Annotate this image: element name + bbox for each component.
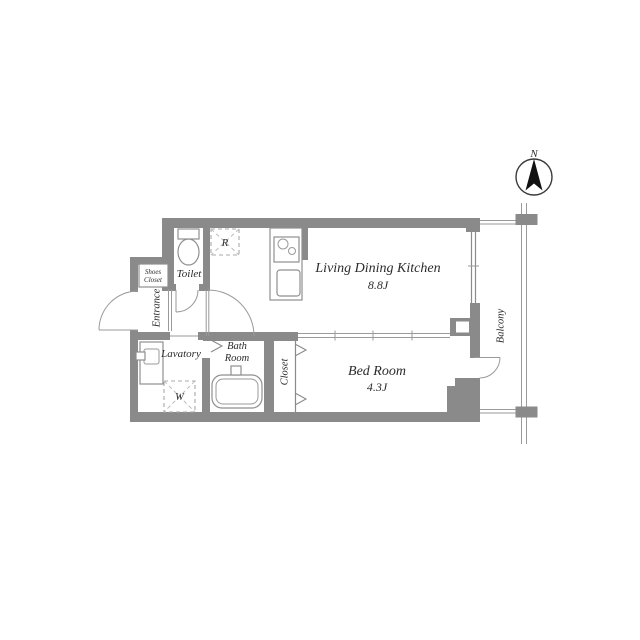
toilet-fixture [178, 229, 199, 265]
bedroom-label: Bed Room [348, 364, 406, 379]
entrance-door [99, 291, 138, 330]
bedroom-area-label: 4.3J [367, 380, 388, 394]
kitchen-sink-icon [277, 270, 300, 296]
floor-plan-drawing: N Living Dining Kitchen 8.8J Bed Room 4.… [0, 0, 640, 640]
toilet-label: Toilet [177, 268, 203, 280]
wall-segment [130, 412, 480, 422]
entrance-step-line [169, 289, 172, 331]
bathtub-fixture [212, 366, 262, 408]
hall-ldk-door [206, 290, 254, 336]
balcony-railing-post [516, 214, 538, 225]
ldk-area-label: 8.8J [368, 278, 389, 292]
bath-faucet-icon [231, 366, 241, 375]
vanity-counter-icon [140, 342, 163, 384]
bathroom-label-line2: Room [224, 353, 250, 364]
wall-segment [162, 218, 480, 228]
closet-folding-doors [295, 341, 306, 412]
kitchen-unit [270, 228, 302, 300]
vanity-handle-icon [136, 352, 145, 360]
balcony-structure [480, 203, 538, 444]
closet-folding-door-icon [295, 344, 306, 356]
toilet-door-swing-arc [176, 290, 198, 312]
room-partition-sliding-doors [298, 331, 450, 341]
pipe-space-hole [456, 322, 469, 333]
toilet-tank-icon [178, 229, 199, 239]
wall-segment [130, 257, 138, 292]
shoes-closet-label-line1: Shoes [145, 268, 162, 276]
refrigerator-label: R [221, 238, 229, 249]
closet-folding-door-icon [295, 393, 306, 405]
compass: N [516, 148, 552, 195]
wall-segment [130, 330, 138, 422]
entrance-door-swing-arc [99, 291, 138, 330]
entrance-label: Entrance [152, 288, 163, 328]
bedroom-balcony-door [474, 358, 500, 379]
wall-segment [202, 358, 210, 412]
toilet-door [176, 290, 198, 312]
wall-segment [203, 228, 210, 291]
ldk-label: Living Dining Kitchen [314, 261, 440, 276]
bathroom-folding-door-icon [211, 340, 222, 352]
lavatory-vanity [136, 342, 163, 384]
balcony-door-swing-arc [480, 358, 501, 379]
washer-label: W [175, 392, 185, 403]
wall-segment [466, 218, 480, 232]
toilet-bowl-icon [178, 239, 199, 265]
wall-segment [264, 341, 274, 412]
ldk-window [468, 230, 479, 303]
shoes-closet-label-line2: Closet [144, 276, 163, 284]
wall-segment [130, 332, 170, 340]
balcony-railing-post [516, 407, 538, 418]
closet-label: Closet [280, 358, 291, 386]
balcony-label: Balcony [496, 308, 507, 343]
compass-north-label: N [529, 148, 538, 160]
bathroom-label-line1: Bath [227, 341, 247, 352]
floor-plan-page: N Living Dining Kitchen 8.8J Bed Room 4.… [0, 0, 640, 640]
hall-door-swing-arc [208, 290, 254, 336]
wall-segment [203, 332, 298, 341]
lavatory-label: Lavatory [160, 348, 201, 360]
wall-segment [447, 386, 480, 412]
